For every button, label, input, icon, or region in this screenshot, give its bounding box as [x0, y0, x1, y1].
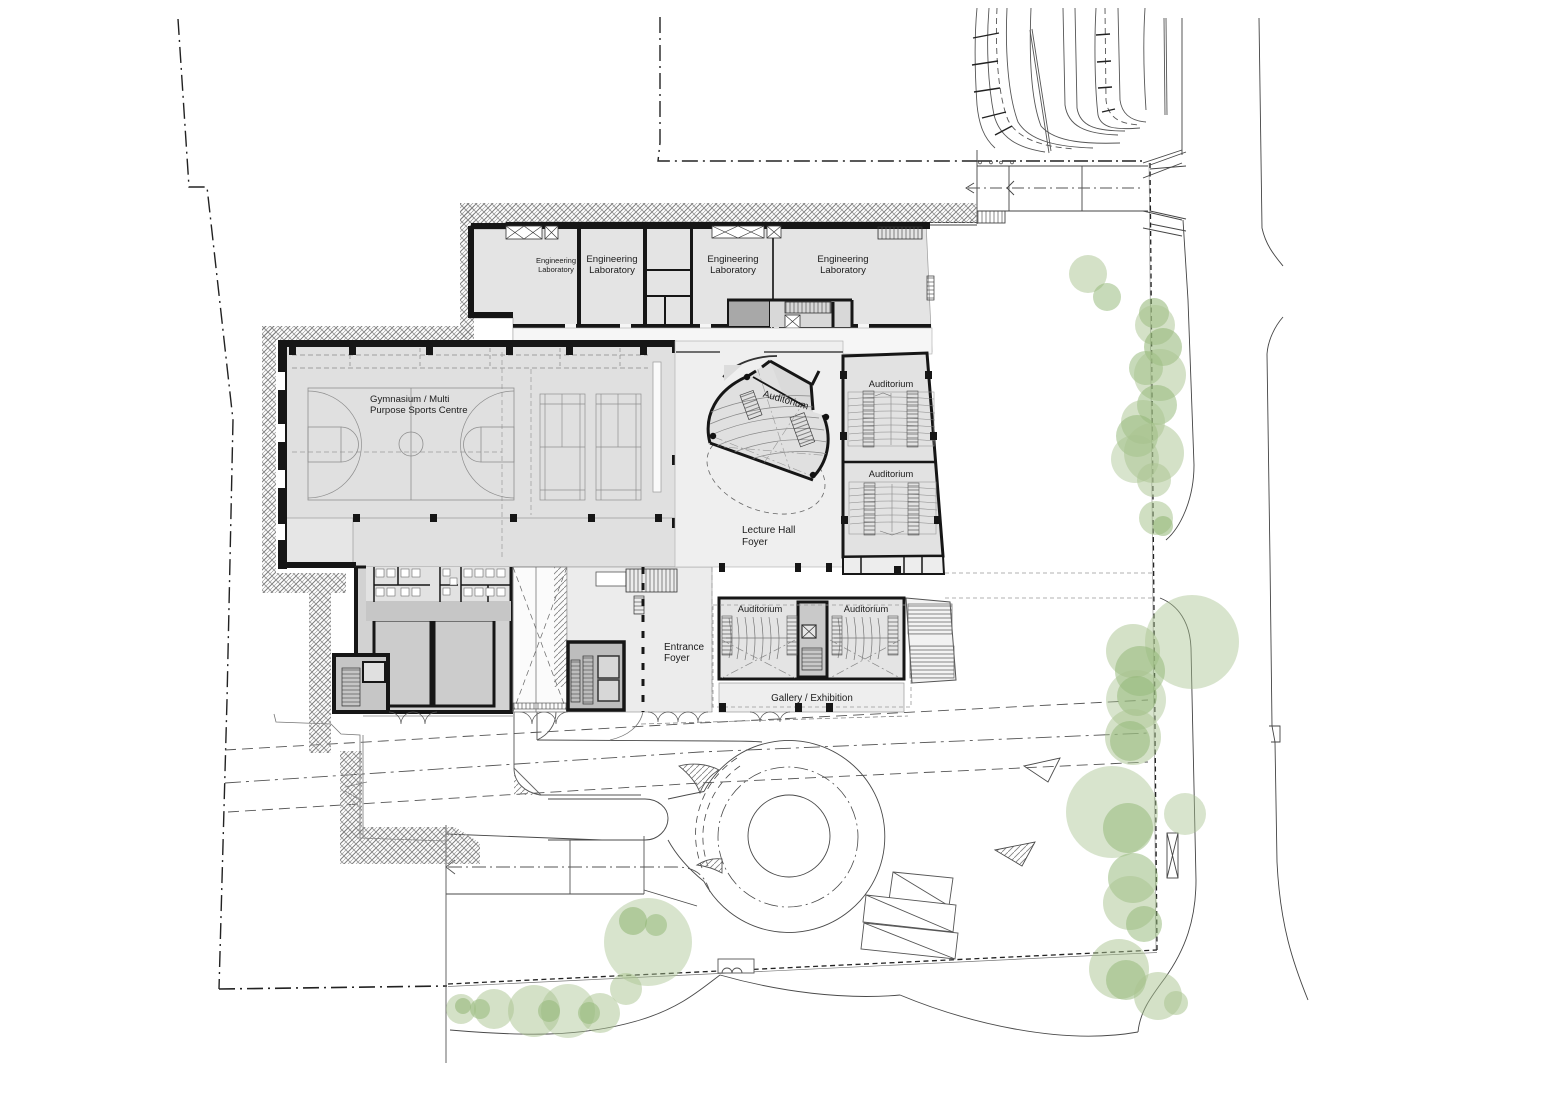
- svg-text:Foyer: Foyer: [664, 653, 690, 664]
- svg-text:Purpose Sports Centre: Purpose Sports Centre: [370, 405, 468, 416]
- svg-text:Laboratory: Laboratory: [538, 265, 574, 274]
- svg-text:Auditorium: Auditorium: [738, 604, 783, 614]
- svg-text:Laboratory: Laboratory: [589, 265, 635, 276]
- svg-text:Auditorium: Auditorium: [869, 469, 914, 479]
- svg-text:Engineering: Engineering: [707, 254, 758, 265]
- svg-text:Auditorium: Auditorium: [869, 379, 914, 389]
- svg-text:Foyer: Foyer: [742, 537, 768, 548]
- svg-text:Laboratory: Laboratory: [710, 265, 756, 276]
- svg-text:Gymnasium / Multi: Gymnasium / Multi: [370, 394, 449, 405]
- svg-text:Laboratory: Laboratory: [820, 265, 866, 276]
- svg-text:Engineering: Engineering: [817, 254, 868, 265]
- svg-text:Engineering: Engineering: [536, 256, 576, 265]
- svg-text:Gallery / Exhibition: Gallery / Exhibition: [771, 693, 853, 704]
- svg-text:Engineering: Engineering: [586, 254, 637, 265]
- svg-text:Auditorium: Auditorium: [844, 604, 889, 614]
- svg-text:Entrance: Entrance: [664, 642, 704, 653]
- svg-text:Lecture Hall: Lecture Hall: [742, 525, 795, 536]
